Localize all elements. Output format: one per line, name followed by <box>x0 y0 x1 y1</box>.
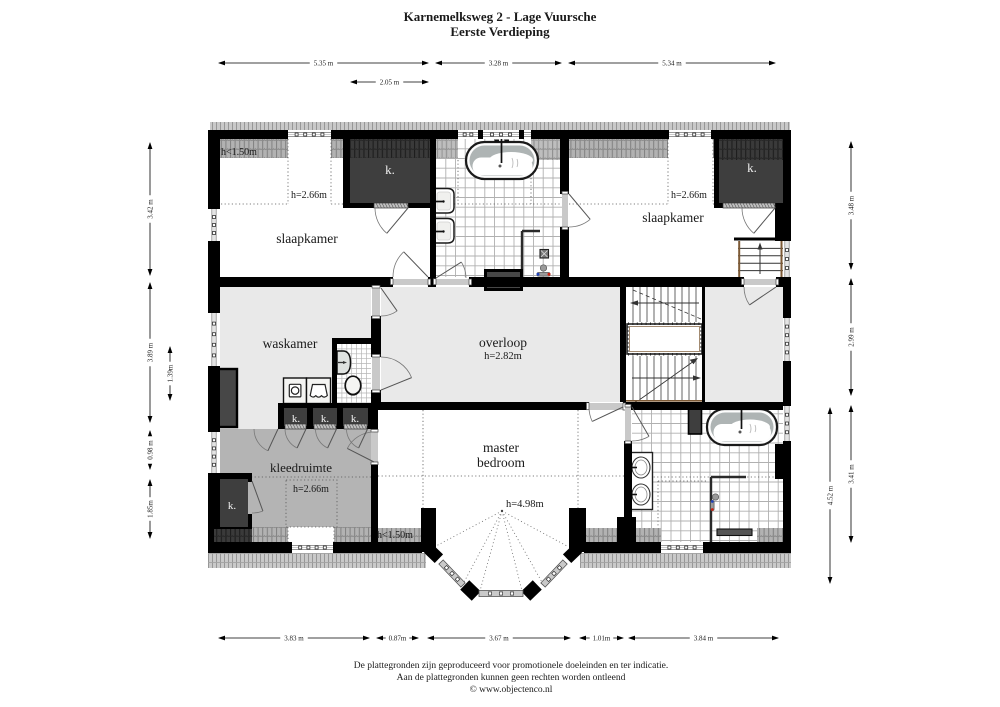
svg-text:Aan de plattegronden kunnen ge: Aan de plattegronden kunnen geen rechten… <box>397 673 626 683</box>
svg-text:master: master <box>483 440 519 455</box>
svg-text:kleedruimte: kleedruimte <box>270 460 332 475</box>
svg-text:Karnemelksweg 2 - Lage Vuursch: Karnemelksweg 2 - Lage Vuursche <box>404 9 597 24</box>
svg-text:overloop: overloop <box>479 335 527 350</box>
svg-text:1.01m: 1.01m <box>593 634 611 642</box>
svg-text:© www.objectenco.nl: © www.objectenco.nl <box>470 684 553 695</box>
svg-text:2.99 m: 2.99 m <box>847 327 855 347</box>
svg-text:k.: k. <box>747 160 757 175</box>
svg-text:5.35 m: 5.35 m <box>314 59 334 67</box>
svg-text:1.39m: 1.39m <box>166 364 174 382</box>
svg-text:3.83 m: 3.83 m <box>284 634 304 642</box>
svg-text:h=2.66m: h=2.66m <box>293 484 329 495</box>
svg-text:3.48 m: 3.48 m <box>847 195 855 215</box>
svg-text:waskamer: waskamer <box>263 336 318 351</box>
svg-text:5.34 m: 5.34 m <box>662 59 682 67</box>
svg-text:3.67 m: 3.67 m <box>489 634 509 642</box>
svg-text:h<1.50m: h<1.50m <box>377 530 413 541</box>
svg-text:3.89 m: 3.89 m <box>146 342 154 362</box>
svg-text:De plattegronden zijn geproduc: De plattegronden zijn geproduceerd voor … <box>354 661 668 671</box>
svg-text:k.: k. <box>351 413 360 425</box>
svg-text:h=2.66m: h=2.66m <box>291 190 327 201</box>
svg-text:3.84 m: 3.84 m <box>694 634 714 642</box>
svg-text:h=4.98m: h=4.98m <box>506 499 544 510</box>
svg-text:2.05 m: 2.05 m <box>380 78 400 86</box>
svg-text:slaapkamer: slaapkamer <box>642 210 704 225</box>
svg-text:0.87m: 0.87m <box>389 634 407 642</box>
svg-text:slaapkamer: slaapkamer <box>276 231 338 246</box>
svg-text:h<1.50m: h<1.50m <box>221 147 257 158</box>
svg-text:Eerste Verdieping: Eerste Verdieping <box>450 24 550 39</box>
svg-text:k.: k. <box>292 413 301 425</box>
svg-text:k.: k. <box>385 162 395 177</box>
svg-text:k.: k. <box>228 500 237 512</box>
svg-text:4.52 m: 4.52 m <box>826 485 834 505</box>
svg-text:3.42 m: 3.42 m <box>146 199 154 219</box>
svg-text:3.41 m: 3.41 m <box>847 464 855 484</box>
svg-text:3.28 m: 3.28 m <box>489 59 509 67</box>
svg-text:k.: k. <box>321 413 330 425</box>
svg-text:h=2.66m: h=2.66m <box>671 190 707 201</box>
svg-text:h=2.82m: h=2.82m <box>484 351 522 362</box>
svg-text:1.85m: 1.85m <box>146 500 154 518</box>
svg-text:0.98 m: 0.98 m <box>146 440 154 460</box>
svg-text:bedroom: bedroom <box>477 455 525 470</box>
